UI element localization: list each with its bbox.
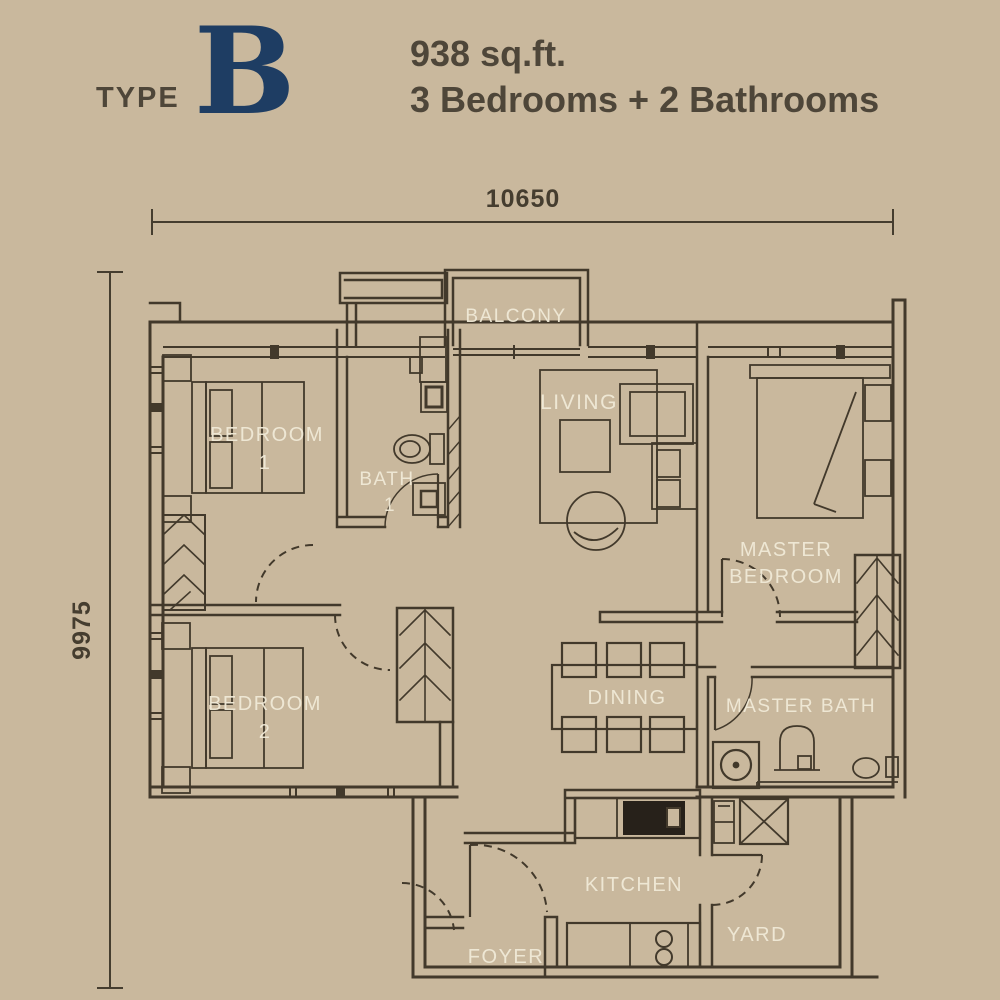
room-label-living: LIVING [540, 391, 618, 414]
room-label-balcony: BALCONY [465, 306, 566, 327]
type-letter: B [194, 1, 295, 142]
dimension-top-value: 10650 [486, 185, 561, 213]
room-label-yard: YARD [727, 924, 787, 946]
room-label-bedroom2-number: 2 [259, 721, 272, 743]
configuration-text: 3 Bedrooms + 2 Bathrooms [410, 79, 879, 120]
room-label-bath1-number: 1 [384, 495, 396, 516]
room-label-master-bath: MASTER BATH [726, 696, 876, 717]
area-text: 938 sq.ft. [410, 33, 566, 74]
room-label-foyer: FOYER [468, 946, 544, 968]
room-label-bedroom1-number: 1 [259, 452, 272, 474]
room-label-bedroom1: BEDROOM [210, 424, 324, 446]
floor-plan-figure: TYPE B 938 sq.ft. 3 Bedrooms + 2 Bathroo… [0, 0, 1000, 1000]
type-label: TYPE [96, 82, 180, 114]
dimension-left-value: 9975 [68, 600, 96, 660]
room-label-master-bedroom-1: MASTER [740, 539, 832, 561]
room-label-dining: DINING [588, 687, 667, 709]
room-label-kitchen: KITCHEN [585, 874, 683, 896]
floorplan-page: TYPE B 938 sq.ft. 3 Bedrooms + 2 Bathroo… [0, 0, 1000, 1000]
room-label-bath1: BATH [359, 469, 414, 490]
room-label-master-bedroom-2: BEDROOM [729, 566, 843, 588]
room-label-bedroom2: BEDROOM [208, 693, 322, 715]
